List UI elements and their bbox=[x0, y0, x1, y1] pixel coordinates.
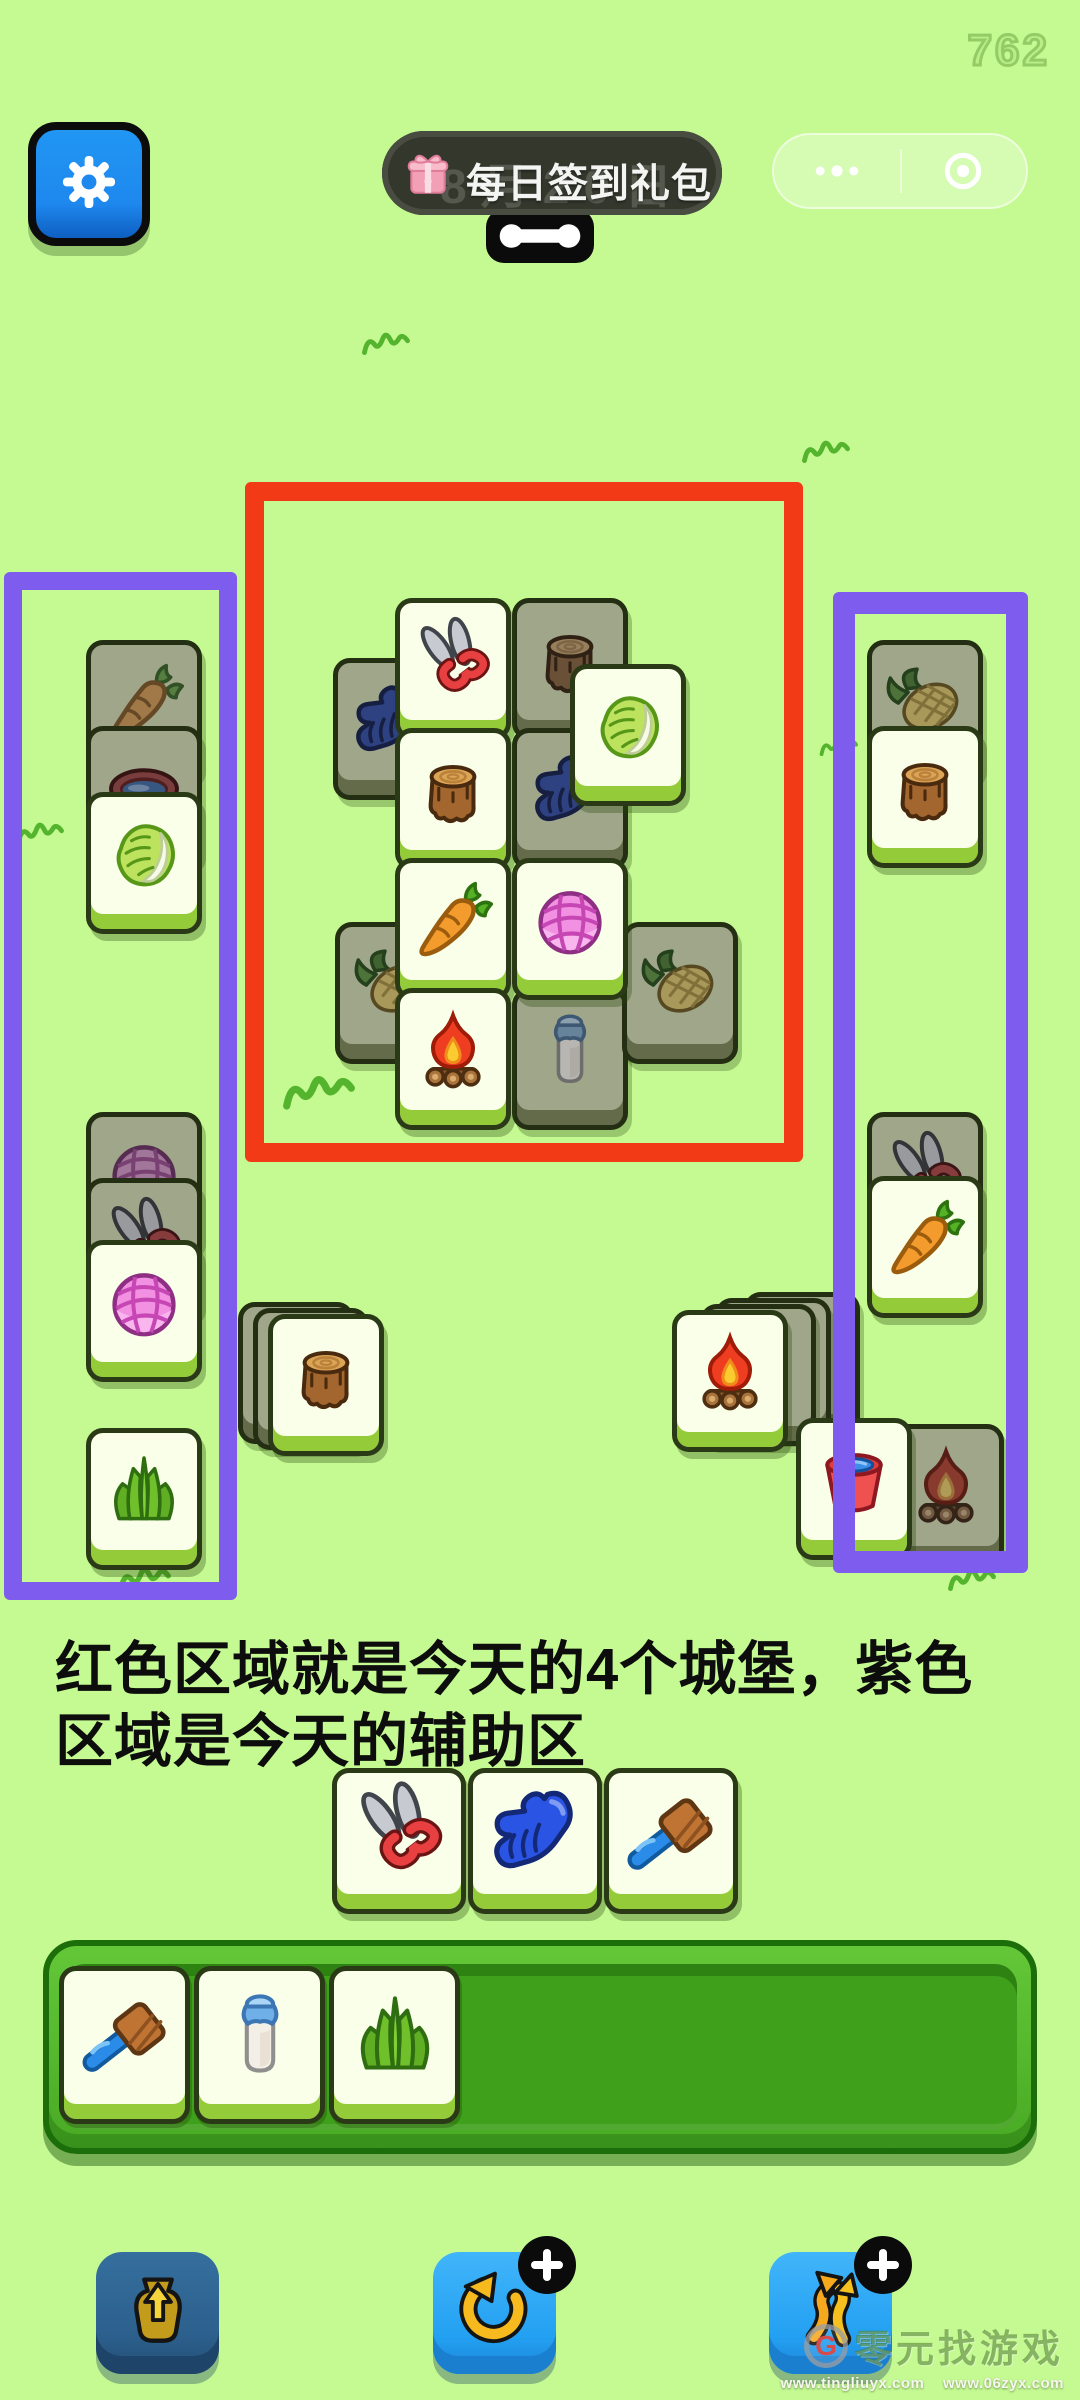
stump-icon bbox=[281, 1324, 370, 1430]
bag-icon bbox=[115, 2265, 201, 2351]
grass-squiggle bbox=[800, 438, 852, 466]
shears-icon bbox=[347, 1778, 451, 1887]
miniprogram-capsule bbox=[772, 133, 1028, 209]
slot-bar bbox=[43, 1940, 1037, 2154]
grass-icon bbox=[344, 1977, 446, 2095]
undo-button[interactable] bbox=[433, 2252, 556, 2374]
purple-helper-left bbox=[4, 572, 237, 1600]
plus-badge bbox=[854, 2236, 912, 2294]
glove-icon bbox=[483, 1778, 587, 1887]
tile-milk bbox=[194, 1966, 325, 2124]
more-button[interactable] bbox=[774, 135, 900, 207]
tile-grass bbox=[329, 1966, 460, 2124]
watermark: G 零元找游戏 www.tingliuyx.com www.06zyx.com bbox=[767, 2318, 1064, 2392]
watermark-url-1: www.tingliuyx.com bbox=[781, 2375, 925, 2392]
milk-icon bbox=[209, 1977, 311, 2095]
caption-line1: 红色区域就是今天的4个城堡，紫色 bbox=[55, 1634, 973, 1706]
frame-counter: 762 bbox=[968, 26, 1050, 76]
game-screen: 762 8月20日 每日签到礼包 红色区域就是今天的4个城堡，紫色 区域是今天的… bbox=[0, 0, 1080, 2400]
bag-button[interactable] bbox=[96, 2252, 219, 2374]
target-circle-icon bbox=[935, 143, 991, 199]
tile-glove[interactable] bbox=[468, 1768, 602, 1914]
tile-shears[interactable] bbox=[332, 1768, 466, 1914]
watermark-url-2: www.06zyx.com bbox=[943, 2375, 1064, 2392]
close-minimize-button[interactable] bbox=[900, 135, 1026, 207]
daily-signin-label: 每日签到礼包 bbox=[466, 151, 712, 209]
tile-brush bbox=[59, 1966, 190, 2124]
brush-icon bbox=[619, 1778, 723, 1887]
brush-icon bbox=[74, 1977, 176, 2095]
tile-fire[interactable] bbox=[672, 1310, 788, 1452]
red-castle-region bbox=[245, 482, 803, 1162]
gear-icon bbox=[58, 151, 120, 213]
gift-icon bbox=[402, 147, 454, 199]
grass-squiggle bbox=[360, 330, 412, 358]
tile-stump[interactable] bbox=[268, 1314, 384, 1456]
plus-badge bbox=[518, 2236, 576, 2294]
daily-signin-button[interactable]: 8月20日 每日签到礼包 bbox=[382, 131, 722, 215]
squiggle-icon bbox=[360, 330, 412, 358]
watermark-brand: 零元找游戏 bbox=[854, 2318, 1064, 2373]
settings-button[interactable] bbox=[28, 122, 150, 246]
caption-text: 红色区域就是今天的4个城堡，紫色 区域是今天的辅助区 bbox=[55, 1634, 973, 1778]
tile-brush[interactable] bbox=[604, 1768, 738, 1914]
caption-line2: 区域是今天的辅助区 bbox=[55, 1706, 973, 1778]
squiggle-icon bbox=[800, 438, 852, 466]
fire-icon bbox=[685, 1320, 774, 1426]
purple-helper-right bbox=[833, 592, 1028, 1573]
signin-pill-handle bbox=[486, 209, 594, 263]
more-dots-icon bbox=[809, 143, 865, 199]
watermark-logo: G bbox=[804, 2324, 848, 2368]
dumbbell-icon bbox=[498, 214, 582, 258]
